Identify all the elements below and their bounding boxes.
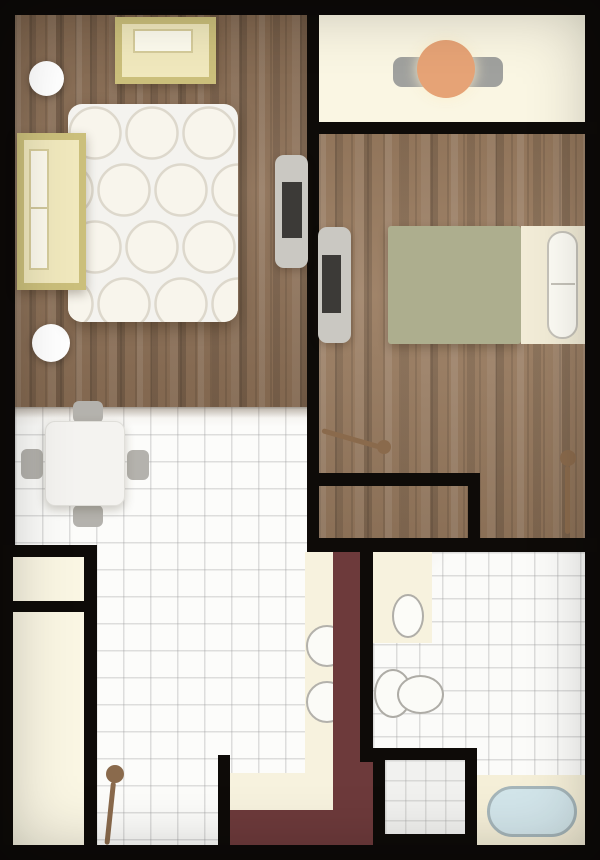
accent-wall-horizontal (230, 810, 360, 845)
wardrobe-door-panel (29, 149, 49, 270)
balcony-round-table (417, 40, 475, 98)
nightstand-drawer (133, 29, 193, 53)
accent-wall-lower-patch (360, 762, 373, 845)
kitchen-counter-horizontal (230, 773, 333, 812)
bedroom-door2-leaf (565, 466, 570, 534)
bathroom-sink (392, 594, 424, 638)
wall-south-of-bedroom (307, 538, 597, 552)
wardrobe-panel-divider (31, 207, 47, 209)
closet-upper-interior (13, 557, 84, 601)
bedroom-bed-blanket (388, 226, 521, 344)
entry-door-knob (106, 765, 124, 783)
toilet-tank (397, 675, 444, 714)
dining-chair-top (73, 401, 103, 423)
accent-wall-vertical (333, 552, 360, 845)
bedroom-door2-knob (560, 450, 576, 466)
living-tv-screen (282, 182, 302, 238)
bedroom-door-knob (377, 440, 391, 454)
living-lamp-upper (29, 61, 64, 96)
bedroom-bed-pillow (547, 231, 578, 339)
bathtub (487, 786, 577, 837)
living-bed (68, 104, 238, 322)
living-lamp-lower (32, 324, 70, 362)
bedroom-tv-screen (322, 255, 341, 313)
wood-tile-transition-shadow (15, 407, 307, 418)
dining-table (45, 421, 125, 506)
wall-bedroom-interior (319, 473, 480, 486)
closet-lower-interior (13, 612, 84, 845)
wall-balcony-bottom (307, 122, 597, 134)
wall-entry (218, 755, 230, 845)
bedroom-bed-pillow-divider (551, 283, 575, 285)
apartment-floorplan (0, 0, 600, 860)
dining-chair-left (21, 449, 43, 479)
dining-chair-right (127, 450, 149, 480)
wall-bathroom-left (360, 552, 373, 762)
shower-tray (385, 760, 465, 834)
dining-chair-bottom (73, 505, 103, 527)
wardrobe (17, 133, 86, 290)
duvet-circles-pattern (68, 104, 238, 322)
